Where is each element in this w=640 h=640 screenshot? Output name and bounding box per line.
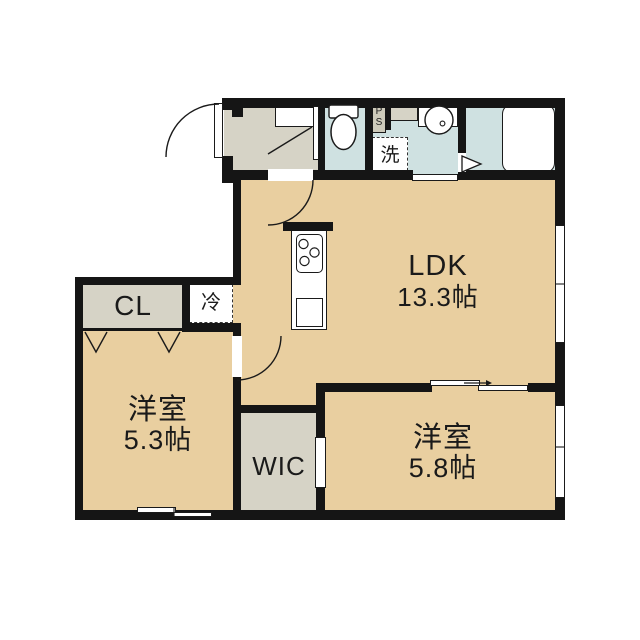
window-bedroom1-south-pane	[137, 507, 176, 513]
refrigerator-name: 冷	[201, 293, 221, 315]
wall	[318, 103, 325, 173]
wall	[232, 106, 243, 117]
entry-door-leaf	[214, 103, 223, 158]
entry-door-arc	[166, 104, 219, 157]
ldk-label: LDK 13.3帖	[378, 249, 498, 313]
bedroom1-label: 洋室 5.3帖	[95, 390, 221, 460]
ldk-name: LDK	[408, 251, 467, 282]
wall	[222, 98, 565, 108]
pipe-space-label: P S	[372, 101, 386, 133]
wall	[233, 170, 241, 285]
window-bedroom2-east	[555, 405, 565, 498]
wall	[528, 383, 562, 392]
kitchen-stove	[296, 234, 323, 273]
bedroom2-sliding-door-pane	[430, 380, 480, 386]
bath-door-opening	[458, 153, 466, 172]
washer-name: 洗	[380, 146, 399, 167]
wall	[233, 405, 325, 413]
wall	[75, 277, 83, 520]
toilet-door-leaf	[313, 106, 319, 160]
pipe-space-p: P	[376, 106, 383, 118]
bedroom1-area: 5.3帖	[124, 426, 193, 455]
wall	[83, 328, 182, 331]
window-ldk-east	[555, 225, 565, 343]
bedroom2-area: 5.8帖	[409, 454, 478, 483]
bedroom1-name: 洋室	[128, 395, 188, 426]
closet-label: CL	[95, 288, 171, 324]
floor-plan: LDK 13.3帖 洋室 5.3帖 洋室 5.8帖 WIC CL 冷 洗 P S	[0, 0, 640, 640]
bedroom1-door-opening	[232, 336, 242, 377]
wall	[458, 170, 565, 180]
kitchen-sink	[296, 298, 323, 327]
wall	[458, 103, 466, 153]
refrigerator-label: 冷	[189, 283, 233, 324]
wic-name: WIC	[252, 452, 306, 480]
wall	[316, 488, 325, 512]
wall	[233, 170, 268, 180]
wall	[233, 329, 241, 336]
bedroom2-name: 洋室	[413, 423, 473, 454]
wall	[233, 377, 241, 512]
wic-label: WIC	[240, 451, 318, 481]
pipe-space-s: S	[376, 117, 383, 129]
bedroom2-sliding-door-pane	[478, 385, 528, 391]
ldk-area: 13.3帖	[397, 283, 479, 311]
closet-name: CL	[114, 291, 152, 321]
kitchen-stub-wall	[283, 222, 333, 231]
window-bedroom1-south-pane	[173, 512, 212, 518]
room-toilet	[322, 103, 368, 173]
wall	[222, 156, 233, 183]
wall	[316, 383, 432, 392]
washroom-sliding-door	[412, 174, 458, 181]
washer-label: 洗	[372, 137, 408, 176]
bedroom2-label: 洋室 5.8帖	[380, 419, 506, 487]
ldk-door-opening	[268, 169, 313, 181]
bathtub-icon	[502, 104, 555, 173]
